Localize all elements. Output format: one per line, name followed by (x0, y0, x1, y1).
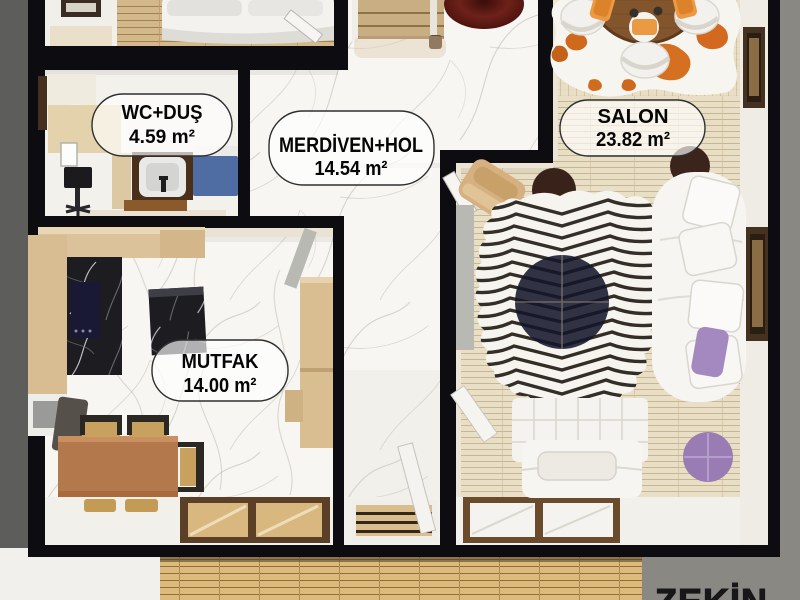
svg-text:ZEKİN: ZEKİN (655, 581, 768, 600)
svg-text:14.00 m²: 14.00 m² (184, 375, 257, 397)
svg-text:SALON: SALON (598, 106, 669, 128)
svg-text:WC+DUŞ: WC+DUŞ (122, 102, 203, 124)
svg-text:MERDİVEN+HOL: MERDİVEN+HOL (279, 134, 423, 157)
svg-text:14.54 m²: 14.54 m² (315, 158, 388, 180)
svg-text:23.82 m²: 23.82 m² (596, 129, 670, 151)
svg-text:4.59 m²: 4.59 m² (129, 127, 195, 148)
svg-text:MUTFAK: MUTFAK (182, 351, 260, 373)
